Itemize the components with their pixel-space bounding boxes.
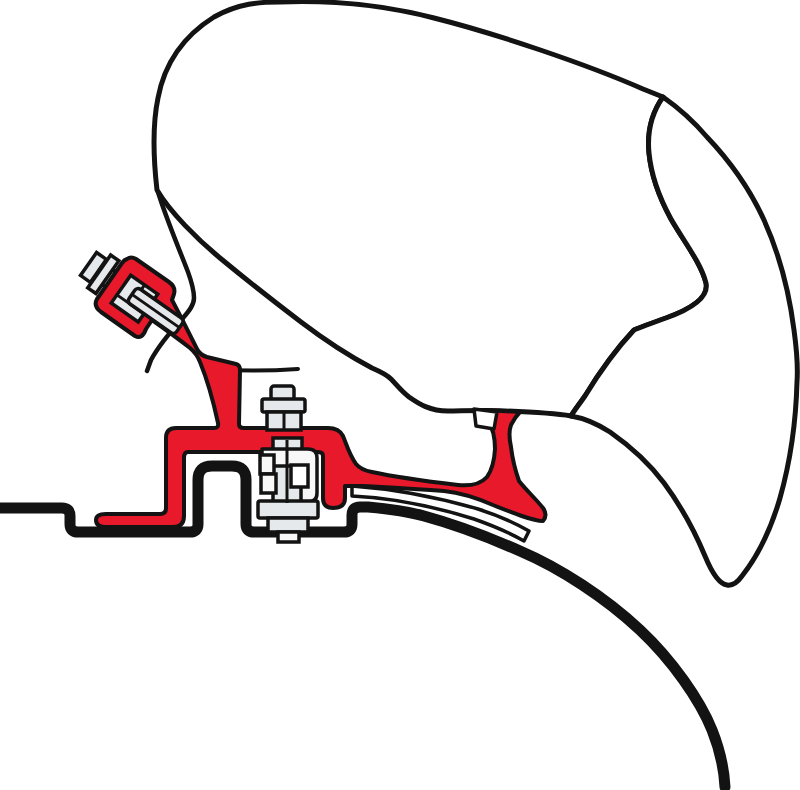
adapter-diagram (0, 0, 800, 790)
rail-clamp-tab-upper (260, 455, 274, 474)
rail-nut-stem (278, 532, 299, 542)
support-pad (474, 409, 497, 429)
rail-nut (258, 501, 318, 518)
diagram-canvas (0, 0, 800, 790)
rail-clamp-notch (291, 465, 308, 487)
rail-clamp-tab-lower (261, 474, 276, 493)
rail-bolt-collar (262, 399, 305, 412)
rail-nut-block (268, 518, 308, 532)
